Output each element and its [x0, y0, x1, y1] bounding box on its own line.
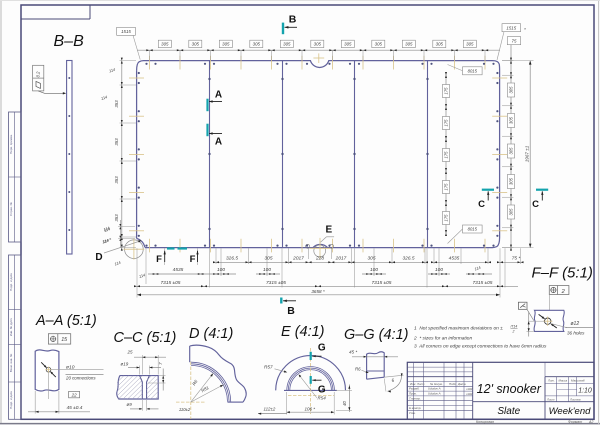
svg-text:353: 353: [114, 176, 119, 184]
svg-text:305: 305: [509, 86, 514, 94]
svg-text:1967 ±1: 1967 ±1: [524, 145, 529, 162]
svg-text:110±2: 110±2: [179, 407, 191, 412]
svg-text:B: B: [289, 13, 297, 25]
svg-text:100: 100: [435, 267, 443, 273]
svg-text:Дата: Дата: [457, 382, 466, 386]
svg-text:75 *: 75 *: [512, 256, 521, 262]
svg-text:326.5: 326.5: [402, 256, 414, 262]
svg-text:Week'end: Week'end: [549, 406, 591, 417]
svg-text:A: A: [215, 137, 222, 148]
svg-text:2017: 2017: [335, 256, 347, 262]
svg-text:45 *: 45 *: [349, 350, 357, 355]
svg-text:175: 175: [444, 214, 449, 222]
svg-text:8015: 8015: [468, 227, 478, 232]
svg-text:A2: A2: [588, 420, 593, 424]
svg-text:305: 305: [436, 41, 444, 46]
svg-text:F: F: [156, 254, 162, 265]
svg-text:228: 228: [315, 256, 324, 262]
svg-text:G: G: [318, 385, 326, 396]
svg-text:Лист: Лист: [546, 398, 555, 402]
svg-text:ø10: ø10: [66, 364, 75, 370]
svg-text:E: E: [325, 225, 332, 236]
svg-text:F: F: [190, 254, 196, 265]
svg-text:0.2: 0.2: [36, 71, 41, 77]
svg-text:Slate: Slate: [497, 406, 520, 417]
svg-text:305: 305: [509, 116, 514, 124]
svg-text:7315 ±05: 7315 ±05: [473, 280, 493, 286]
svg-text:D (4:1): D (4:1): [189, 326, 233, 342]
svg-text:353: 353: [114, 138, 119, 146]
svg-text:4535: 4535: [449, 256, 460, 262]
svg-text:C–C (5:1): C–C (5:1): [114, 330, 177, 346]
svg-text:Подп. и дата: Подп. и дата: [9, 273, 13, 291]
svg-text:C: C: [478, 199, 485, 210]
svg-text:22: 22: [71, 392, 78, 397]
svg-text:175: 175: [444, 183, 449, 191]
svg-text:G–G (4:1): G–G (4:1): [344, 327, 408, 343]
svg-text:305: 305: [253, 41, 261, 46]
svg-text:Справ. №: Справ. №: [9, 201, 13, 215]
svg-text:100: 100: [370, 267, 378, 273]
svg-text:112±2: 112±2: [264, 407, 276, 412]
svg-text:305: 305: [367, 256, 375, 262]
svg-text:Перв. примен.: Перв. примен.: [9, 134, 13, 154]
svg-text:ø12: ø12: [571, 321, 580, 327]
svg-text:305: 305: [509, 177, 514, 185]
svg-text:Масштаб: Масштаб: [571, 378, 585, 382]
svg-text:175: 175: [444, 119, 449, 127]
svg-text:305: 305: [192, 41, 200, 46]
svg-text:326.5: 326.5: [226, 256, 238, 262]
svg-text:305: 305: [314, 41, 322, 46]
svg-text:R54: R54: [318, 396, 327, 401]
svg-text:305: 305: [375, 41, 383, 46]
svg-text:305: 305: [264, 256, 272, 262]
svg-text:12' snooker: 12' snooker: [477, 382, 542, 396]
svg-text:36 holes: 36 holes: [567, 330, 585, 335]
svg-text:20 connections: 20 connections: [65, 375, 96, 380]
svg-text:R57: R57: [264, 364, 273, 369]
svg-text:Udodov A: Udodov A: [428, 387, 441, 391]
svg-text:8015: 8015: [468, 68, 478, 73]
svg-text:Изм: Изм: [410, 382, 415, 386]
svg-text:*: *: [524, 27, 526, 32]
svg-text:F–F (5:1): F–F (5:1): [532, 265, 593, 282]
svg-text:7315 ±05: 7315 ±05: [372, 280, 392, 286]
svg-text:2 * sizes for an information: 2 * sizes for an information: [413, 335, 472, 341]
svg-text:305: 305: [222, 41, 230, 46]
svg-text:1515: 1515: [506, 25, 516, 30]
svg-text:A–A (5:1): A–A (5:1): [35, 313, 97, 329]
svg-text:353: 353: [114, 100, 119, 108]
svg-text:305: 305: [405, 41, 413, 46]
svg-text:B: B: [287, 305, 295, 317]
svg-text:Н.контр.: Н.контр.: [409, 406, 421, 410]
svg-text:Лит.: Лит.: [547, 378, 555, 382]
svg-text:Подп. и дата: Подп. и дата: [9, 391, 13, 409]
svg-text:Формат: Формат: [568, 420, 582, 424]
svg-text:Т.контр.: Т.контр.: [409, 396, 421, 400]
svg-text:1 Not specified maximum devia: 1 Not specified maximum deviations on ±: [414, 325, 503, 331]
svg-text:100: 100: [217, 267, 225, 273]
svg-text:Копировал: Копировал: [476, 420, 494, 424]
svg-text:Подп: Подп: [449, 382, 456, 386]
svg-text:LDR: LDR: [467, 392, 473, 396]
svg-text:LDR: LDR: [467, 387, 473, 391]
svg-text:7315 ±05: 7315 ±05: [266, 280, 286, 286]
svg-text:305: 305: [161, 41, 169, 46]
svg-text:305: 305: [466, 41, 474, 46]
svg-text:D: D: [95, 252, 102, 263]
svg-text:Пров.: Пров.: [409, 392, 417, 396]
svg-text:№ докум.: № докум.: [430, 382, 443, 386]
svg-text:ø19: ø19: [121, 361, 129, 366]
svg-text:305: 305: [283, 41, 291, 46]
svg-text:40: 40: [342, 401, 347, 406]
svg-text:E (4:1): E (4:1): [281, 324, 325, 340]
svg-text:B–B: B–B: [54, 33, 85, 50]
svg-text:75: 75: [512, 38, 517, 43]
svg-text:Утв.: Утв.: [409, 411, 416, 415]
svg-text:3 All corners on edge except: 3 All corners on edge except connections…: [414, 343, 547, 349]
svg-text:100: 100: [263, 267, 271, 273]
svg-text:2: 2: [512, 329, 515, 333]
svg-text:G: G: [318, 343, 326, 354]
svg-text:305: 305: [509, 208, 514, 216]
svg-text:305: 305: [344, 41, 352, 46]
svg-text:4535: 4535: [173, 267, 184, 273]
svg-text:Udodov A: Udodov A: [428, 392, 441, 396]
svg-text:7315 ±05: 7315 ±05: [161, 280, 181, 286]
svg-text:Взам. инв. №: Взам. инв. №: [9, 353, 13, 372]
svg-text:ø9: ø9: [127, 402, 133, 407]
svg-text:Лист: Лист: [416, 382, 425, 386]
svg-text:R6: R6: [355, 367, 361, 372]
svg-text:A: A: [215, 90, 222, 101]
svg-text:305: 305: [509, 147, 514, 155]
svg-text:15: 15: [61, 337, 68, 343]
svg-text:106 *: 106 *: [305, 406, 316, 411]
svg-text:25: 25: [127, 349, 134, 354]
svg-text:175: 175: [444, 151, 449, 159]
svg-text:Масса: Масса: [559, 378, 568, 382]
svg-text:Разраб.: Разраб.: [409, 387, 420, 391]
svg-text:175: 175: [444, 87, 449, 95]
svg-text:3658 *: 3658 *: [311, 289, 324, 294]
svg-text:353: 353: [114, 214, 119, 222]
svg-text:1:10: 1:10: [578, 388, 592, 395]
svg-text:IT14: IT14: [511, 324, 518, 328]
svg-text:C: C: [532, 199, 539, 210]
svg-text:2017: 2017: [292, 256, 304, 262]
svg-text:1515: 1515: [121, 29, 131, 34]
svg-text:Листов: Листов: [569, 398, 581, 402]
svg-text:45 ±0.4: 45 ±0.4: [67, 405, 83, 411]
svg-text:Инв. № дубл.: Инв. № дубл.: [9, 318, 13, 337]
